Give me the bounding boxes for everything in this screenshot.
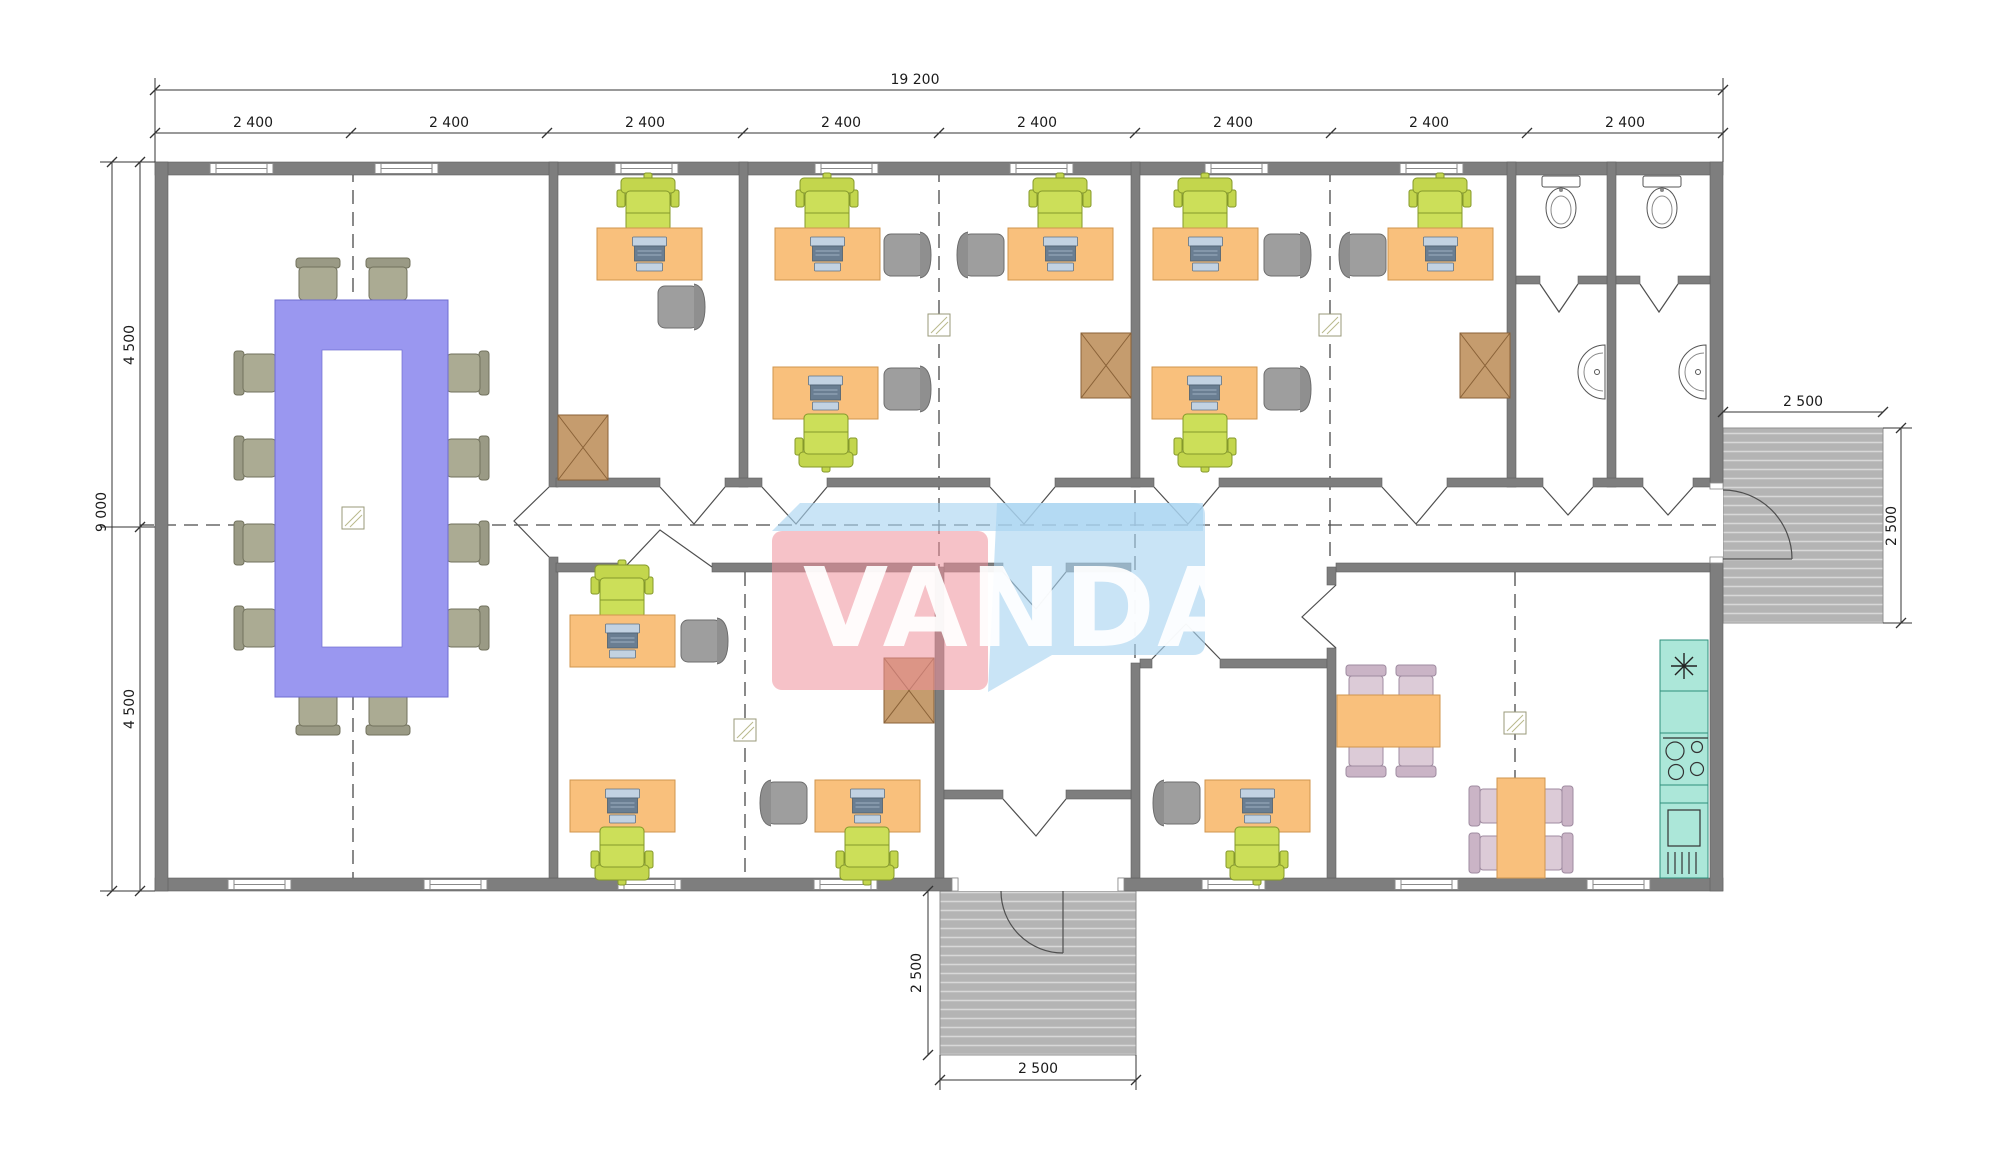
window-icon — [618, 880, 681, 890]
task-chair-icon — [836, 827, 898, 885]
desk — [773, 367, 878, 419]
desk — [1008, 228, 1113, 280]
dim-half-lower: 4 500 — [122, 689, 138, 729]
dim-bay: 2 400 — [1605, 115, 1645, 131]
meeting-chair-icon — [234, 436, 276, 480]
window-icon — [1010, 164, 1073, 174]
dim-porch-entry-depth: 2 500 — [909, 953, 925, 993]
meeting-chair-icon — [234, 606, 276, 650]
task-chair-icon — [1174, 414, 1236, 472]
dim-bay: 2 400 — [429, 115, 469, 131]
task-chair-icon — [1174, 173, 1236, 231]
visitor-chair-icon — [957, 232, 1004, 278]
meeting-chair-icon — [366, 693, 410, 735]
window-icon — [1400, 164, 1463, 174]
visitor-chair-icon — [658, 284, 705, 330]
center-marker-icon — [1504, 712, 1526, 734]
window-icon — [1205, 164, 1268, 174]
dim-bay: 2 400 — [625, 115, 665, 131]
floor-plan-drawing: 19 200 2 400 2 400 2 400 2 400 2 400 2 4… — [0, 0, 2000, 1160]
window-icon — [615, 164, 678, 174]
desk — [1205, 780, 1310, 832]
task-chair-icon — [617, 173, 679, 231]
desk — [1152, 367, 1257, 419]
storage-cabinet-icon — [1081, 333, 1131, 398]
meeting-chair-icon — [296, 693, 340, 735]
window-icon — [228, 880, 291, 890]
task-chair-icon — [1226, 827, 1288, 885]
desk — [1388, 228, 1493, 280]
task-chair-icon — [796, 173, 858, 231]
meeting-chair-icon — [234, 521, 276, 565]
dim-bay: 2 400 — [1213, 115, 1253, 131]
desk — [1153, 228, 1258, 280]
window-icon — [1395, 880, 1458, 890]
dining-table — [1497, 778, 1545, 878]
dim-overall-height: 9 000 — [94, 492, 110, 532]
dim-half-upper: 4 500 — [122, 325, 138, 365]
dim-bay: 2 400 — [1017, 115, 1057, 131]
kitchen-unit — [1660, 640, 1708, 878]
meeting-table-opening — [322, 350, 402, 647]
desk — [775, 228, 880, 280]
meeting-chair-icon — [447, 436, 489, 480]
logo-text: VANDA — [803, 544, 1244, 672]
task-chair-icon — [1029, 173, 1091, 231]
dim-overall-width: 19 200 — [891, 72, 940, 88]
meeting-chair-icon — [296, 258, 340, 300]
task-chair-icon — [795, 414, 857, 472]
center-marker-icon — [1319, 314, 1341, 336]
window-icon — [815, 164, 878, 174]
desk — [597, 228, 702, 280]
floor-plan-page: 19 200 2 400 2 400 2 400 2 400 2 400 2 4… — [0, 0, 2000, 1160]
meeting-chair-icon — [447, 351, 489, 395]
vanda-watermark: VANDA — [772, 503, 1244, 692]
window-icon — [1587, 880, 1650, 890]
desk — [570, 615, 675, 667]
dim-bay: 2 400 — [1409, 115, 1449, 131]
meeting-chair-icon — [366, 258, 410, 300]
window-icon — [375, 164, 438, 174]
meeting-chair-icon — [447, 606, 489, 650]
window-icon — [210, 164, 273, 174]
dining-table — [1337, 695, 1440, 747]
storage-cabinet-icon — [558, 415, 608, 480]
dim-porch-entry-width: 2 500 — [1018, 1061, 1058, 1077]
meeting-chair-icon — [234, 351, 276, 395]
visitor-chair-icon — [884, 232, 931, 278]
dim-porch-right-width: 2 500 — [1783, 394, 1823, 410]
porch-entry — [940, 891, 1136, 1055]
porch-right — [1723, 428, 1883, 623]
dim-bay: 2 400 — [821, 115, 861, 131]
visitor-chair-icon — [884, 366, 931, 412]
task-chair-icon — [591, 560, 653, 618]
visitor-chair-icon — [1264, 232, 1311, 278]
meeting-chair-icon — [447, 521, 489, 565]
storage-cabinet-icon — [1460, 333, 1510, 398]
visitor-chair-icon — [1153, 780, 1200, 826]
dim-porch-right-depth: 2 500 — [1884, 506, 1900, 546]
visitor-chair-icon — [1264, 366, 1311, 412]
visitor-chair-icon — [1339, 232, 1386, 278]
task-chair-icon — [1409, 173, 1471, 231]
center-marker-icon — [928, 314, 950, 336]
visitor-chair-icon — [760, 780, 807, 826]
center-marker-icon — [342, 507, 364, 529]
desk — [815, 780, 920, 832]
center-marker-icon — [734, 719, 756, 741]
desk — [570, 780, 675, 832]
task-chair-icon — [591, 827, 653, 885]
dim-bay: 2 400 — [233, 115, 273, 131]
window-icon — [424, 880, 487, 890]
visitor-chair-icon — [681, 618, 728, 664]
